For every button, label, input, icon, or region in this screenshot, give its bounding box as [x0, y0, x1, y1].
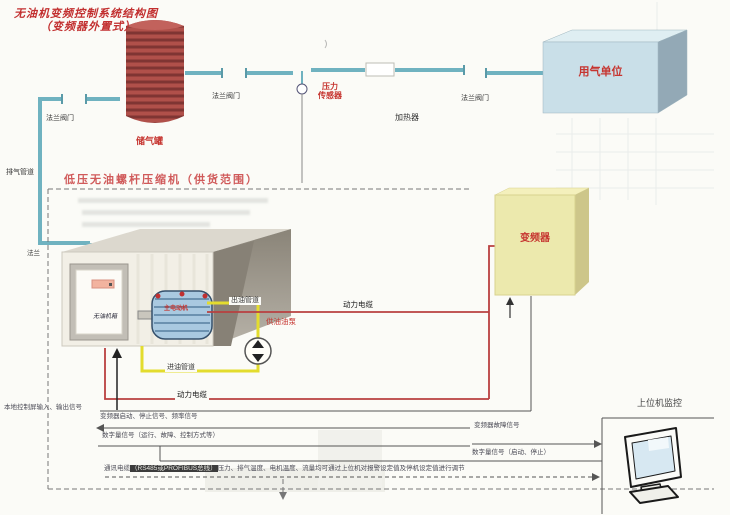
- power-cable-label-top: 动力电缆: [341, 301, 375, 310]
- tank-label: 储气罐: [136, 136, 163, 146]
- comm-prefix: 通讯电缆: [104, 465, 130, 472]
- pressure-sensor-line1: 压力: [322, 82, 338, 91]
- oil-in-label: 进油管道: [165, 364, 197, 372]
- faint-note-line: [82, 210, 250, 215]
- diagram-title-line2: （变频器外置式）: [40, 21, 136, 34]
- comm-bus-highlight: （RS485或PROFIBUS总线）: [130, 465, 218, 472]
- vfd-fault-signal-label: 变频器故障信号: [474, 422, 520, 429]
- vfd-control-signal-label: 变频器启动、停止信号、频率信号: [100, 413, 198, 420]
- oil-pump-label: 供油油泵: [266, 318, 296, 327]
- heater-body: [366, 63, 394, 76]
- heater-label: 加热器: [395, 113, 419, 122]
- local-io-label: 本地控制屏输入、输出信号: [4, 404, 82, 411]
- gas-unit-label: 用气单位: [548, 66, 653, 79]
- comm-rest: 压力、排气温度、电机温度、流量均可通过上位机对报警设定值及停机设定值进行调节: [218, 465, 465, 472]
- monitor-icon: [625, 428, 681, 503]
- diagram-canvas: 无油机变频控制系统结构图 （变频器外置式） 储气罐 法兰阀门 法兰阀门 法兰阀门…: [0, 0, 730, 515]
- comm-cable-note: 通讯电缆（RS485或PROFIBUS总线）压力、排气温度、电机温度、流量均可通…: [104, 465, 465, 472]
- faint-note-line: [82, 222, 210, 227]
- exhaust-pipe-label: 排气管道: [6, 169, 34, 177]
- scan-mark: [325, 40, 327, 48]
- cabinet-panel: [70, 264, 128, 340]
- flange-valve-label-mid: 法兰阀门: [212, 93, 240, 101]
- diagram-title-line1: 无油机变频控制系统结构图: [14, 8, 158, 21]
- pressure-sensor-line2: 传感器: [318, 91, 342, 100]
- oil-out-label: 出油管道: [229, 297, 261, 305]
- digital-start-signal-label: 数字量信号（启动、停止）: [472, 449, 550, 456]
- oil-pump: [245, 338, 271, 364]
- vfd-up-arrow: [506, 297, 514, 318]
- arrow-down: [279, 492, 287, 500]
- motor-label: 主电动机: [164, 306, 188, 313]
- digital-run-signal-label: 数字量信号（运行、故障、控制方式等）: [102, 432, 219, 439]
- compressor-input-arrow: [112, 348, 122, 410]
- power-cable-label-bottom: 动力电缆: [175, 391, 209, 400]
- host-monitor-label: 上位机监控: [637, 398, 682, 408]
- cabinet-label: 无油机箱: [93, 314, 117, 321]
- faint-note-line: [78, 198, 268, 203]
- flange-valve-label-left: 法兰阀门: [46, 115, 74, 123]
- supply-scope-heading: 低压无油螺杆压缩机（供货范围）: [64, 174, 259, 187]
- pressure-sensor-label: 压力 传感器: [300, 82, 360, 100]
- storage-tank: [126, 20, 184, 123]
- flange-label: 法兰: [27, 250, 40, 257]
- vfd-label: 变频器: [500, 233, 570, 245]
- flange-valve-label-right: 法兰阀门: [461, 95, 489, 103]
